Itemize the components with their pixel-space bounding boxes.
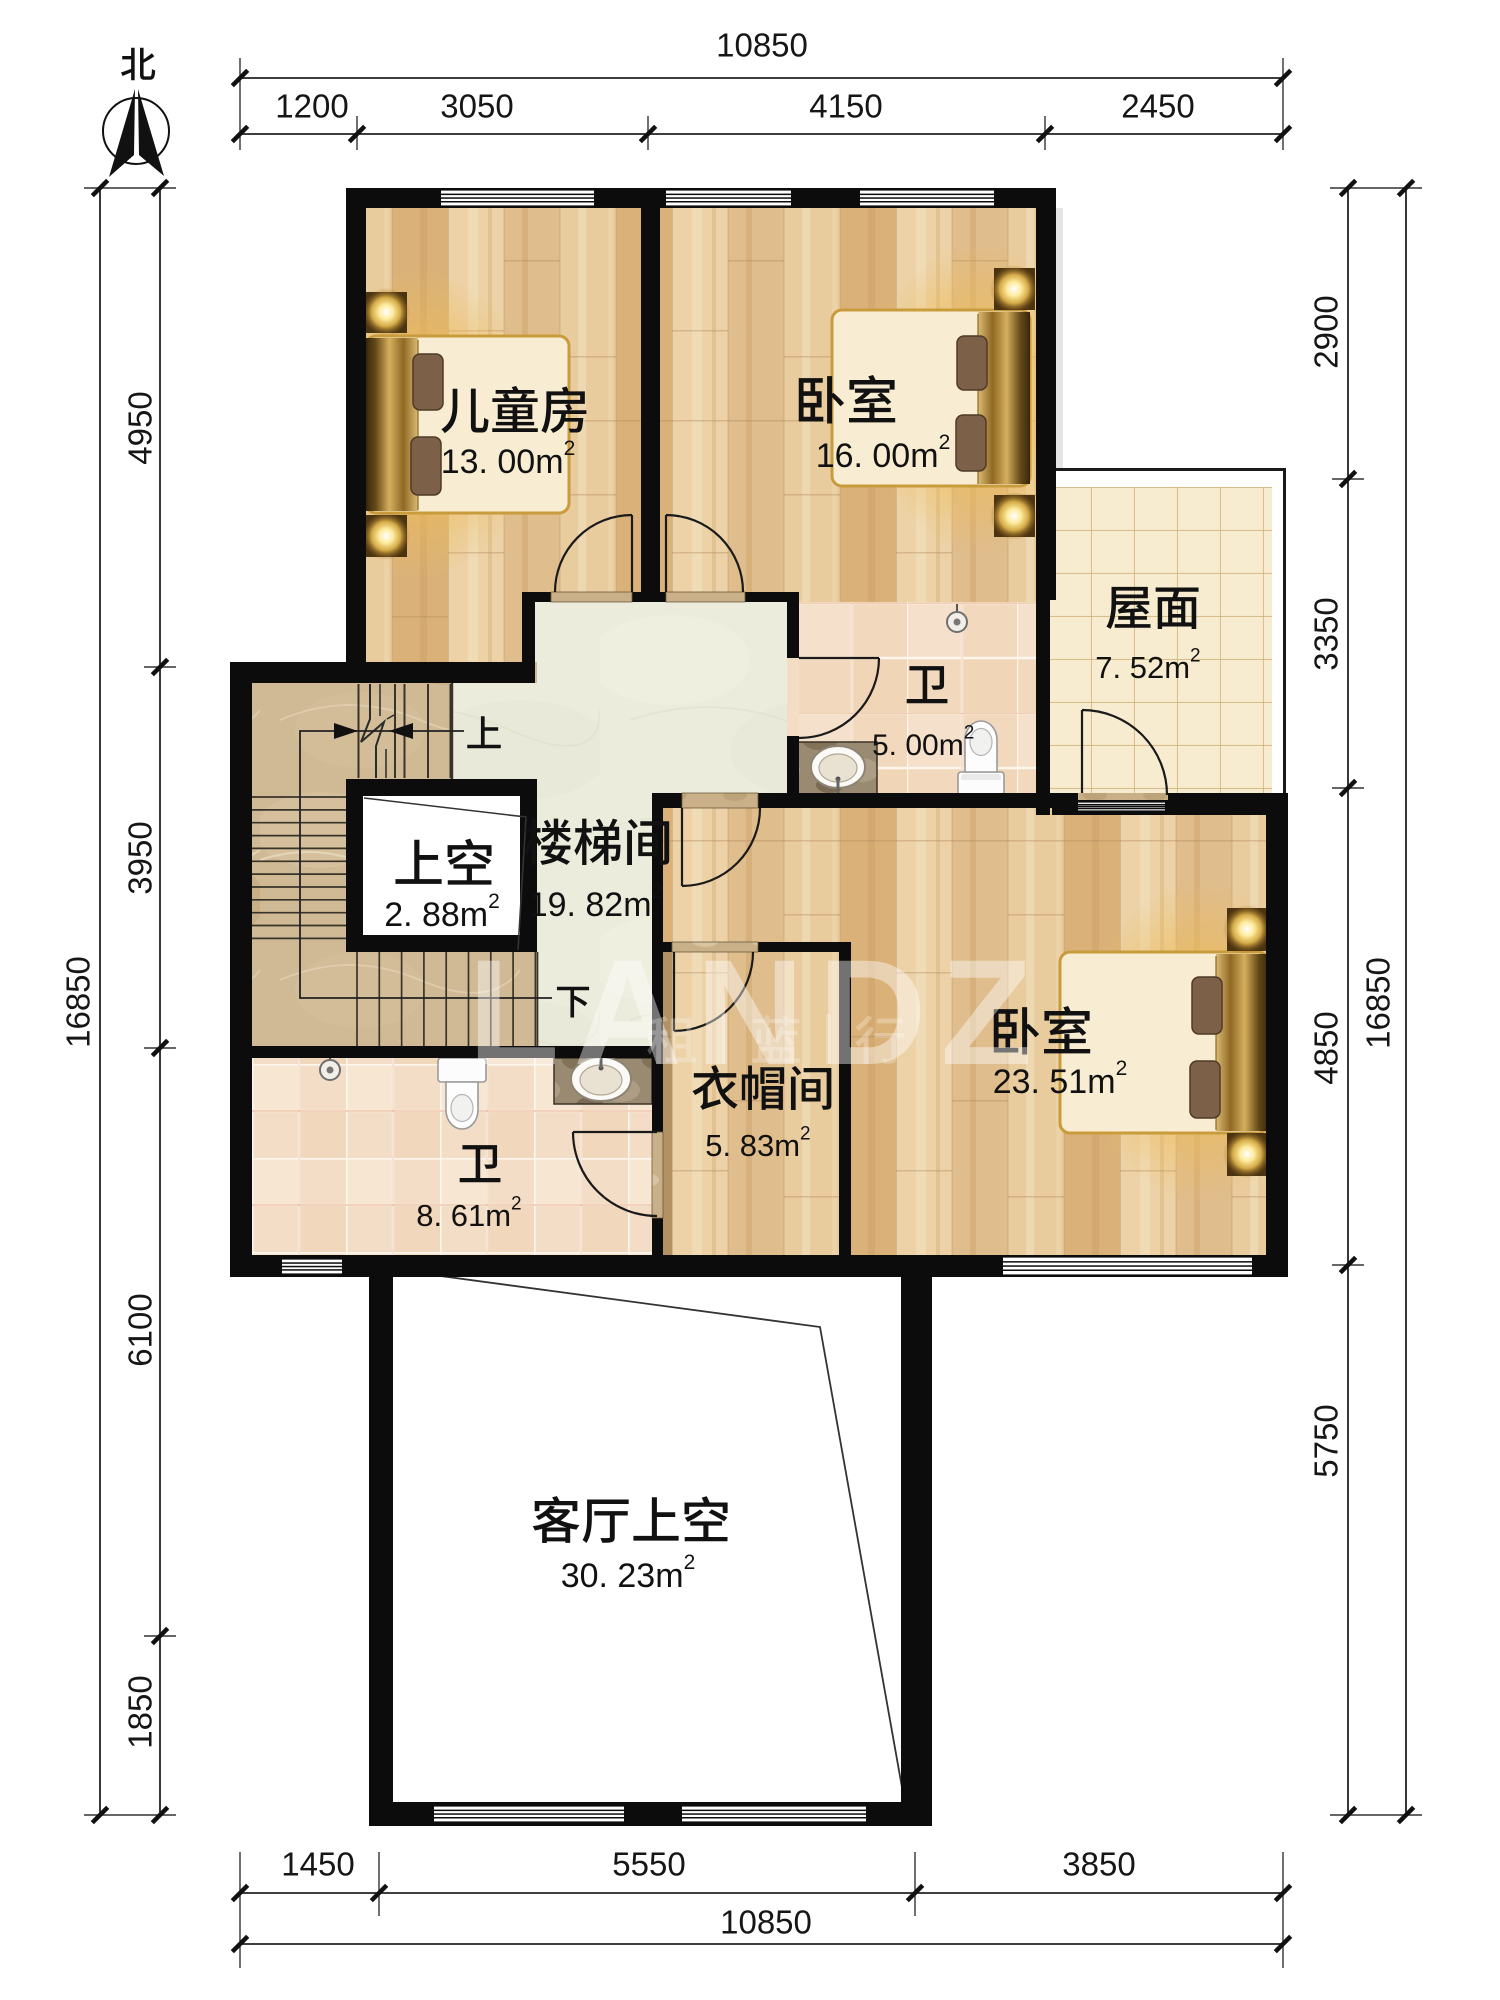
svg-text:1850: 1850 <box>122 1675 159 1748</box>
svg-text:3350: 3350 <box>1308 597 1345 670</box>
svg-text:6100: 6100 <box>122 1293 159 1366</box>
svg-text:5750: 5750 <box>1308 1404 1345 1477</box>
svg-text:2: 2 <box>488 890 500 913</box>
svg-text:16. 00m: 16. 00m <box>816 437 939 475</box>
svg-text:8. 61m: 8. 61m <box>416 1198 511 1233</box>
svg-text:2: 2 <box>1116 1057 1128 1080</box>
svg-text:LANDZ: LANDZ <box>468 928 1046 1096</box>
svg-text:4950: 4950 <box>122 391 159 464</box>
svg-text:1450: 1450 <box>281 1846 354 1883</box>
svg-text:5. 00m: 5. 00m <box>872 729 964 762</box>
svg-text:2: 2 <box>800 1123 811 1144</box>
svg-text:2450: 2450 <box>1121 88 1194 125</box>
svg-text:19. 82m: 19. 82m <box>529 886 652 924</box>
svg-text:4850: 4850 <box>1308 1011 1345 1084</box>
svg-text:10850: 10850 <box>716 27 808 64</box>
svg-text:5550: 5550 <box>612 1846 685 1883</box>
svg-text:16850: 16850 <box>60 956 97 1048</box>
svg-text:3950: 3950 <box>122 821 159 894</box>
svg-text:2: 2 <box>964 723 975 744</box>
svg-text:2: 2 <box>1190 645 1201 666</box>
svg-text:3050: 3050 <box>440 88 513 125</box>
svg-text:10850: 10850 <box>720 1904 812 1941</box>
svg-text:2900: 2900 <box>1308 295 1345 368</box>
svg-text:5. 83m: 5. 83m <box>705 1128 800 1163</box>
svg-text:2: 2 <box>511 1193 522 1214</box>
svg-text:16850: 16850 <box>1360 957 1397 1049</box>
svg-text:3850: 3850 <box>1062 1846 1135 1883</box>
svg-text:13. 00m: 13. 00m <box>441 443 564 481</box>
svg-text:1200: 1200 <box>275 88 348 125</box>
svg-text:7. 52m: 7. 52m <box>1095 650 1190 685</box>
svg-text:30. 23m: 30. 23m <box>561 1557 684 1595</box>
svg-text:2: 2 <box>652 880 664 903</box>
svg-text:2: 2 <box>939 431 951 454</box>
svg-text:4150: 4150 <box>809 88 882 125</box>
svg-text:2: 2 <box>684 1551 696 1574</box>
svg-text:2: 2 <box>564 437 576 460</box>
